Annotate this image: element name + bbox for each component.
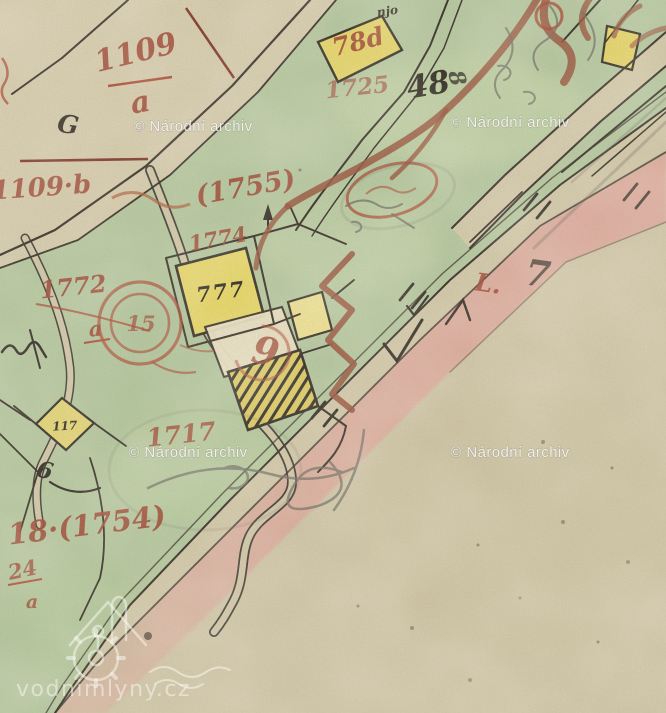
cadastral-map-scan: 1109 a 1109·b (1755) 1725 78d 1774 1772 … [0, 0, 666, 713]
archive-watermark-bottom-left: © Národní archiv [128, 444, 247, 461]
archive-watermark-top-right: © Národní archiv [450, 114, 569, 131]
archive-watermark-top-left: © Národní archiv [133, 118, 252, 135]
grain-overlay-blotch [0, 0, 666, 713]
map-canvas: 1109 a 1109·b (1755) 1725 78d 1774 1772 … [0, 0, 666, 713]
archive-watermark-bottom-right: © Národní archiv [450, 444, 569, 461]
vodnimlyny-text: vodnimlyny.cz [16, 677, 191, 702]
